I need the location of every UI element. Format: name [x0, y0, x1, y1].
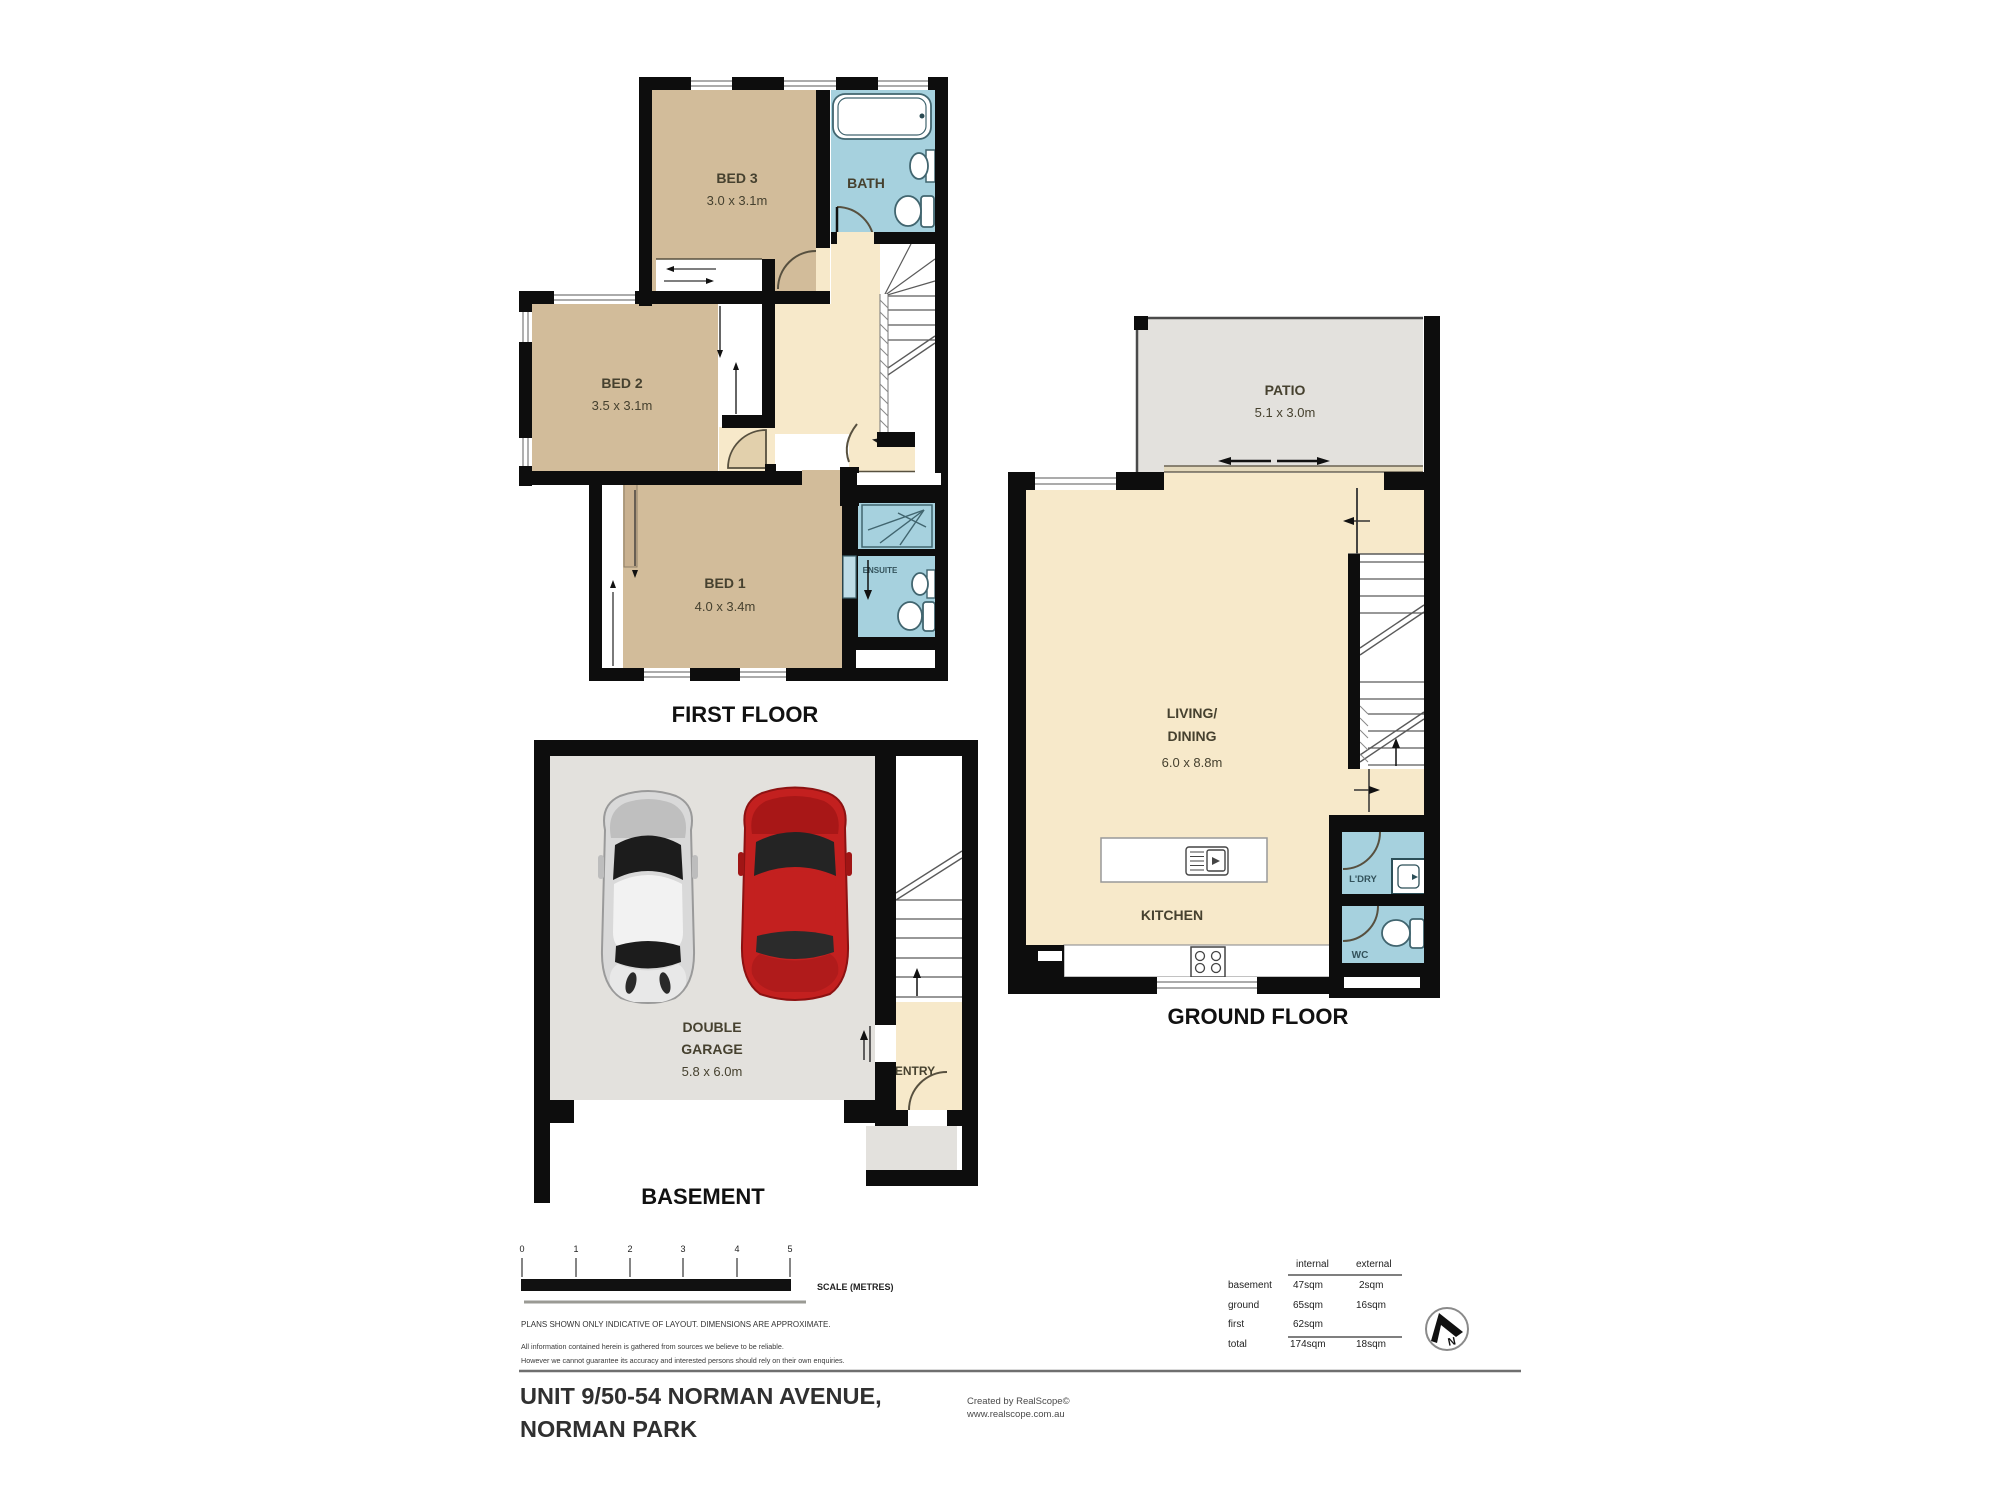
svg-text:However we cannot guarantee it: However we cannot guarantee its accuracy… [521, 1356, 845, 1365]
svg-text:BATH: BATH [847, 175, 885, 191]
svg-text:4.0 x 3.4m: 4.0 x 3.4m [695, 599, 756, 614]
svg-text:0: 0 [519, 1244, 524, 1254]
svg-text:BASEMENT: BASEMENT [641, 1184, 765, 1209]
svg-text:first: first [1228, 1319, 1244, 1330]
svg-text:DOUBLE: DOUBLE [682, 1019, 741, 1035]
svg-text:UNIT 9/50-54 NORMAN AVENUE,: UNIT 9/50-54 NORMAN AVENUE, [520, 1383, 882, 1409]
svg-text:47sqm: 47sqm [1293, 1280, 1323, 1291]
svg-text:basement: basement [1228, 1280, 1272, 1291]
svg-text:2: 2 [627, 1244, 632, 1254]
svg-text:internal: internal [1296, 1259, 1329, 1270]
svg-text:18sqm: 18sqm [1356, 1339, 1386, 1350]
svg-text:16sqm: 16sqm [1356, 1300, 1386, 1311]
svg-text:BED 1: BED 1 [704, 575, 745, 591]
svg-text:LIVING/: LIVING/ [1167, 705, 1218, 721]
svg-text:4: 4 [734, 1244, 739, 1254]
svg-text:WC: WC [1352, 950, 1369, 961]
svg-text:3.5 x 3.1m: 3.5 x 3.1m [592, 398, 653, 413]
svg-text:total: total [1228, 1339, 1247, 1350]
svg-text:3: 3 [680, 1244, 685, 1254]
svg-text:5.8 x 6.0m: 5.8 x 6.0m [682, 1064, 743, 1079]
svg-text:2sqm: 2sqm [1359, 1280, 1383, 1291]
svg-text:BED 2: BED 2 [601, 375, 642, 391]
svg-text:www.realscope.com.au: www.realscope.com.au [966, 1409, 1065, 1420]
svg-text:GARAGE: GARAGE [681, 1041, 742, 1057]
svg-text:ground: ground [1228, 1300, 1259, 1311]
svg-text:DINING: DINING [1168, 728, 1217, 744]
svg-text:KITCHEN: KITCHEN [1141, 907, 1203, 923]
svg-text:6.0 x 8.8m: 6.0 x 8.8m [1162, 755, 1223, 770]
svg-text:5.1 x 3.0m: 5.1 x 3.0m [1255, 405, 1316, 420]
svg-text:All information contained here: All information contained herein is gath… [521, 1342, 784, 1351]
svg-text:174sqm: 174sqm [1290, 1339, 1326, 1350]
svg-text:external: external [1356, 1259, 1392, 1270]
svg-text:GROUND FLOOR: GROUND FLOOR [1168, 1004, 1349, 1029]
svg-text:65sqm: 65sqm [1293, 1300, 1323, 1311]
svg-text:PATIO: PATIO [1265, 382, 1306, 398]
svg-text:FIRST FLOOR: FIRST FLOOR [672, 702, 819, 727]
svg-text:PLANS SHOWN ONLY INDICATIVE OF: PLANS SHOWN ONLY INDICATIVE OF LAYOUT. D… [521, 1320, 831, 1329]
svg-text:BED 3: BED 3 [716, 170, 757, 186]
svg-text:62sqm: 62sqm [1293, 1319, 1323, 1330]
svg-text:SCALE (METRES): SCALE (METRES) [817, 1282, 894, 1292]
svg-text:5: 5 [787, 1244, 792, 1254]
svg-text:1: 1 [573, 1244, 578, 1254]
svg-text:3.0 x 3.1m: 3.0 x 3.1m [707, 193, 768, 208]
svg-text:NORMAN PARK: NORMAN PARK [520, 1416, 697, 1442]
svg-text:Created by RealScope©: Created by RealScope© [967, 1396, 1070, 1407]
svg-text:L'DRY: L'DRY [1349, 874, 1377, 885]
